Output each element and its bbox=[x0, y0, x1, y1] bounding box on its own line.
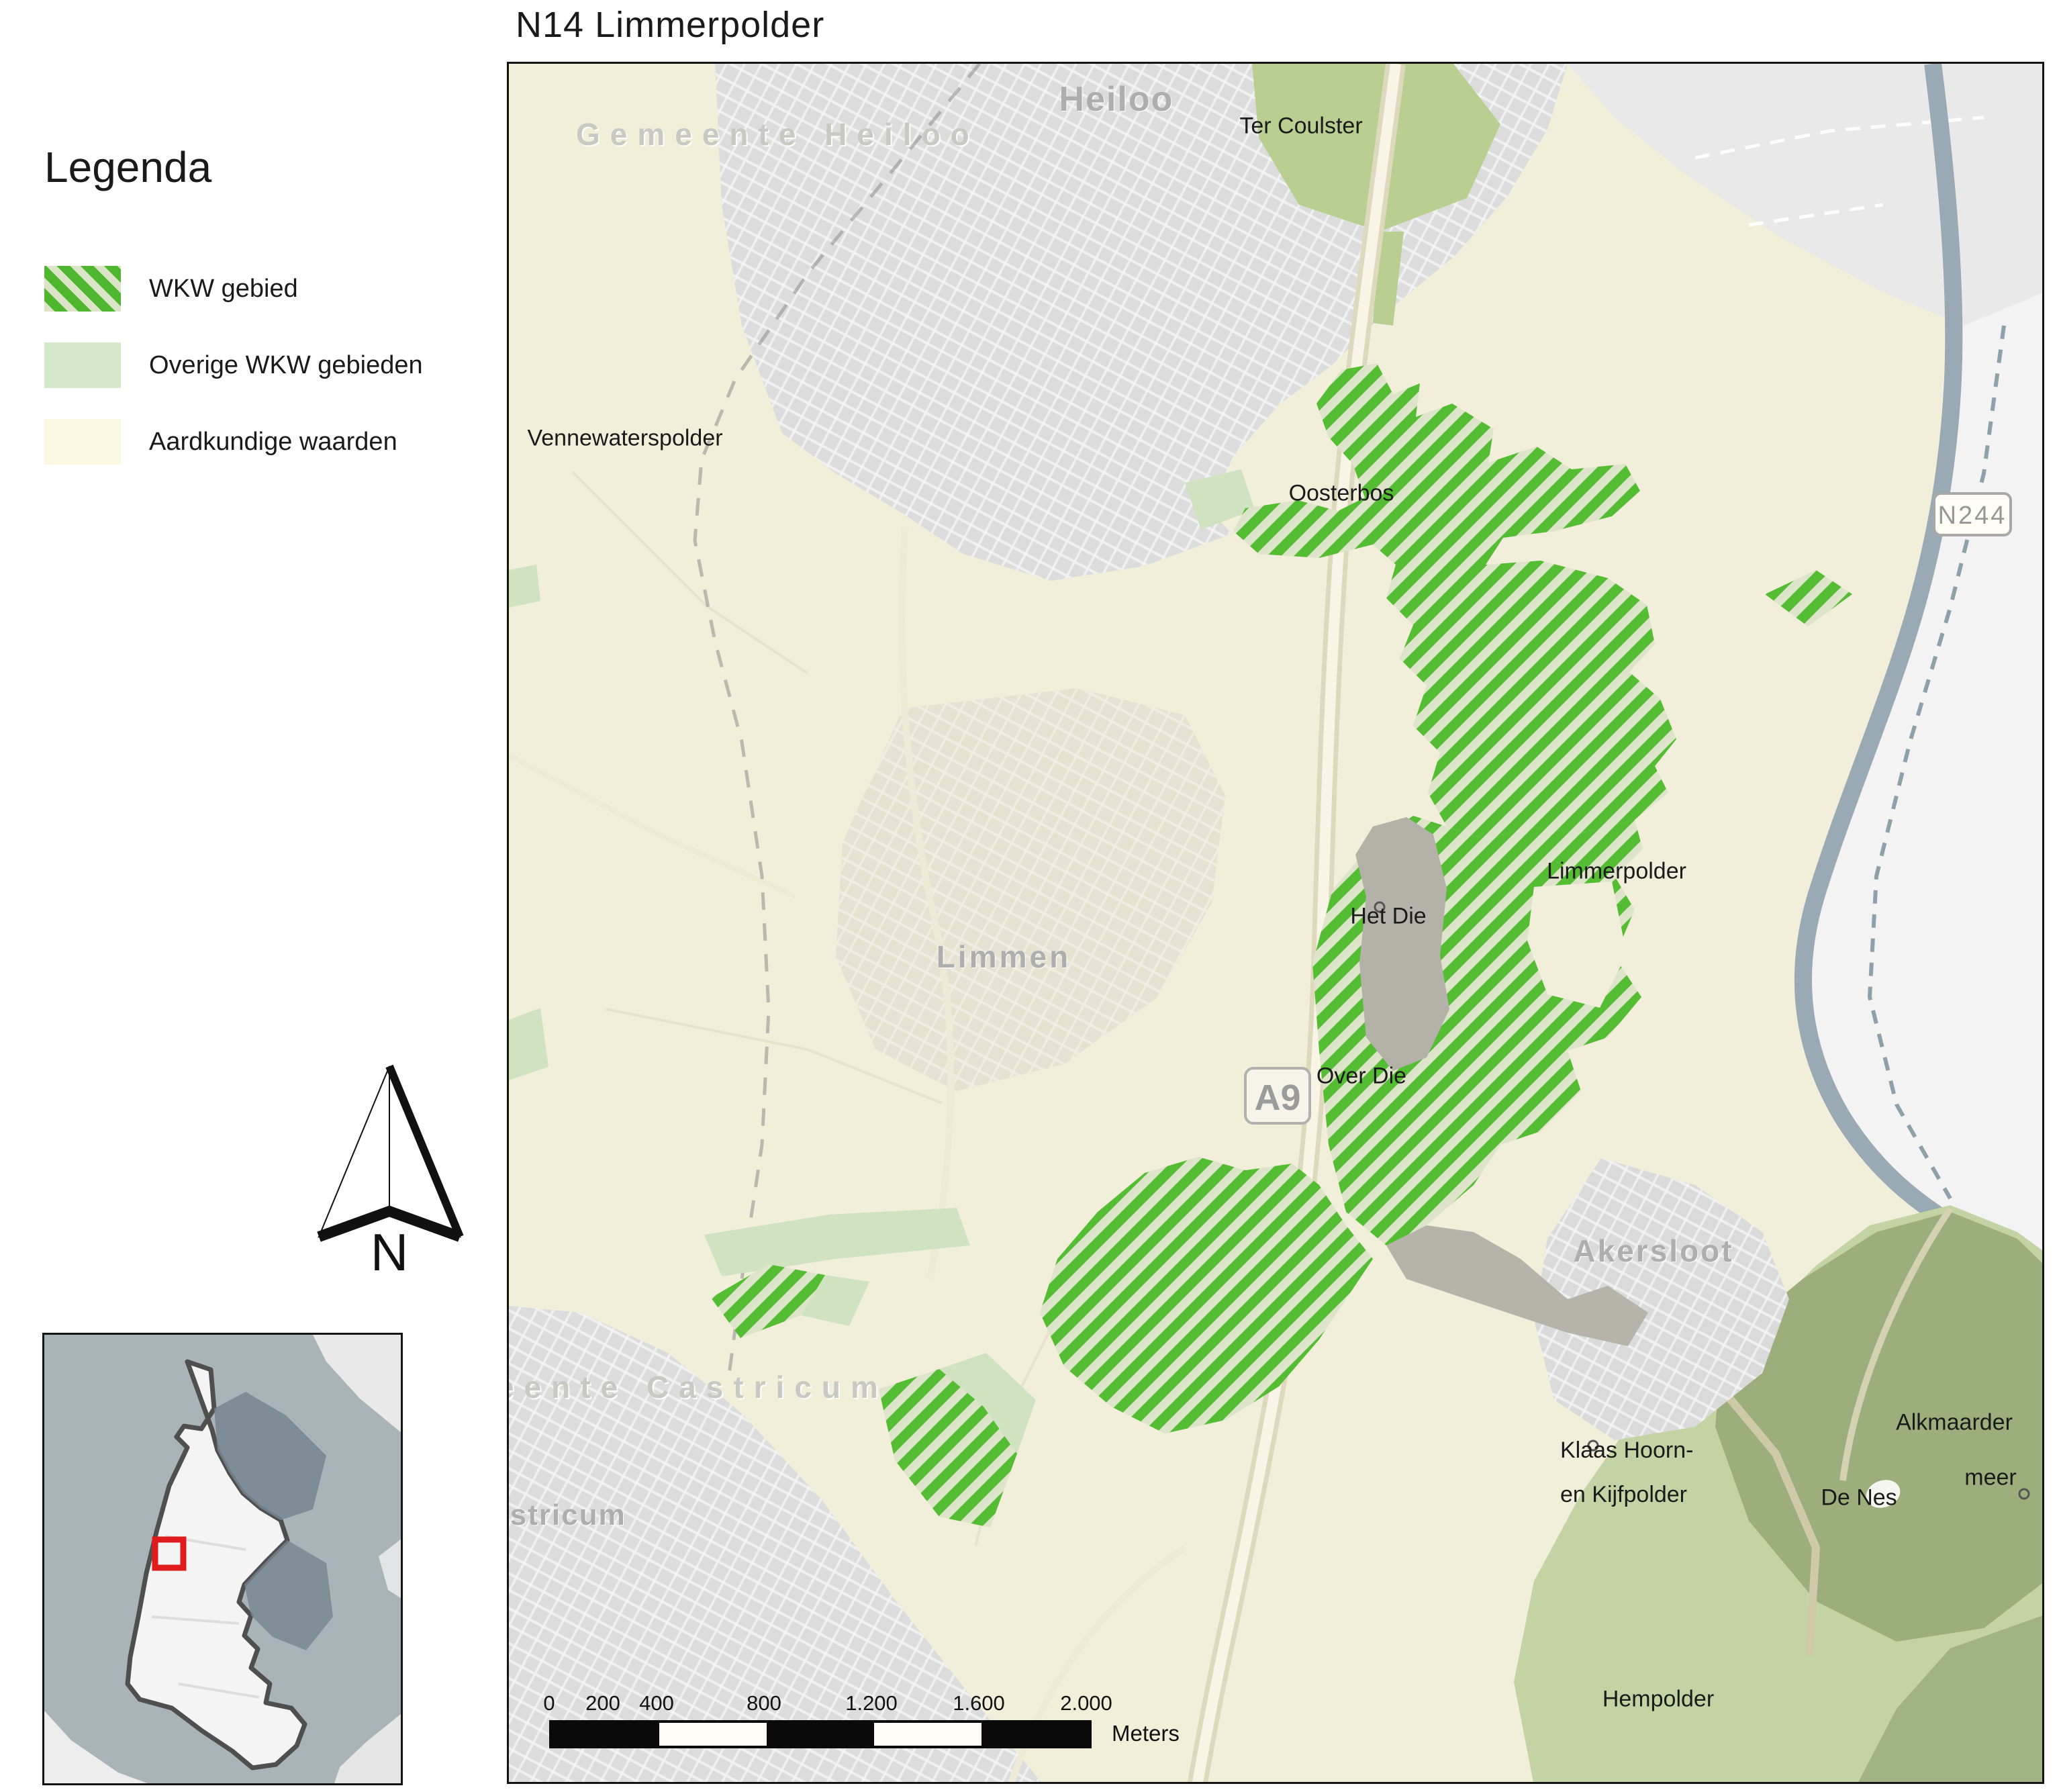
scale-bar-segment bbox=[552, 1723, 659, 1746]
legend-title: Legenda bbox=[44, 142, 423, 192]
map-graphic: A9 N244 bbox=[509, 64, 2044, 1784]
map-label-meer: meer bbox=[1964, 1465, 2016, 1491]
n244-shield-label: N244 bbox=[1938, 502, 2007, 530]
aardkundige-waarden-swatch-icon bbox=[44, 419, 121, 465]
a9-road-shield: A9 bbox=[1245, 1068, 1310, 1123]
scale-tick: 1.200 bbox=[845, 1691, 898, 1715]
page-title: N14 Limmerpolder bbox=[516, 4, 824, 46]
map-label-klaas-hoorn-en-kijfpolder: Klaas Hoorn- en Kijfpolder bbox=[1560, 1428, 1693, 1517]
scale-bar-segment bbox=[874, 1723, 981, 1746]
map-label-oosterbos: Oosterbos bbox=[1289, 481, 1394, 507]
legend-item-aardkundige-waarden: Aardkundige waarden bbox=[44, 419, 423, 465]
scale-bar-unit: Meters bbox=[1112, 1721, 1180, 1746]
wkw-hatch-swatch-icon bbox=[44, 266, 121, 312]
map-label-ter-coulster: Ter Coulster bbox=[1239, 113, 1362, 140]
map-canvas: A9 N244 Heiloo Gemeente Heiloo bbox=[507, 62, 2044, 1784]
scale-tick: 0 bbox=[543, 1691, 555, 1715]
map-label-castricum: astricum bbox=[507, 1499, 626, 1532]
locator-map-graphic bbox=[44, 1335, 403, 1785]
legend: Legenda WKW gebied Overige WKW gebieden … bbox=[44, 142, 423, 496]
legend-item-wkw-gebied: WKW gebied bbox=[44, 266, 423, 312]
scale-tick: 1.600 bbox=[953, 1691, 1005, 1715]
locator-inset-map bbox=[42, 1333, 403, 1785]
map-label-het-die: Het Die bbox=[1350, 904, 1426, 930]
scale-bar-segment bbox=[981, 1723, 1089, 1746]
map-watermark-gemeente-heiloo: Gemeente Heiloo bbox=[576, 116, 979, 152]
legend-item-label: Overige WKW gebieden bbox=[149, 351, 423, 380]
north-arrow-label: N bbox=[371, 1223, 408, 1276]
north-arrow-icon: N bbox=[305, 1061, 473, 1276]
scale-bar-segment bbox=[659, 1723, 767, 1746]
legend-item-label: Aardkundige waarden bbox=[149, 428, 397, 457]
map-label-limmerpolder: Limmerpolder bbox=[1547, 859, 1686, 885]
map-label-klaas-hoorn-line2: en Kijfpolder bbox=[1560, 1472, 1693, 1517]
scale-tick: 200 bbox=[585, 1691, 620, 1715]
scale-bar-ticks: 0 200 400 800 1.200 1.600 2.000 bbox=[509, 1691, 2042, 1718]
map-label-heiloo: Heiloo bbox=[1059, 79, 1174, 120]
map-label-akersloot: Akersloot bbox=[1573, 1233, 1733, 1269]
a9-shield-label: A9 bbox=[1254, 1078, 1300, 1118]
map-label-over-die: Over Die bbox=[1316, 1064, 1406, 1090]
scale-bar bbox=[549, 1720, 1092, 1748]
map-label-vennewaterspolder: Vennewaterspolder bbox=[527, 426, 722, 452]
scale-tick: 800 bbox=[747, 1691, 781, 1715]
n244-road-shield: N244 bbox=[1934, 493, 2011, 535]
scale-tick: 2.000 bbox=[1060, 1691, 1112, 1715]
map-watermark-gemeente-castricum: eente Castricum bbox=[507, 1369, 888, 1405]
map-label-limmen: Limmen bbox=[937, 939, 1071, 975]
map-label-klaas-hoorn-line1: Klaas Hoorn- bbox=[1560, 1428, 1693, 1472]
map-label-de-nes: De Nes bbox=[1821, 1485, 1897, 1511]
legend-item-overige-wkw: Overige WKW gebieden bbox=[44, 342, 423, 388]
scale-tick: 400 bbox=[639, 1691, 674, 1715]
map-label-alkmaarder: Alkmaarder bbox=[1896, 1410, 2013, 1436]
legend-item-label: WKW gebied bbox=[149, 275, 298, 303]
scale-bar-segment bbox=[767, 1723, 874, 1746]
map-het-die-water bbox=[1355, 817, 1449, 1071]
overige-wkw-swatch-icon bbox=[44, 342, 121, 388]
